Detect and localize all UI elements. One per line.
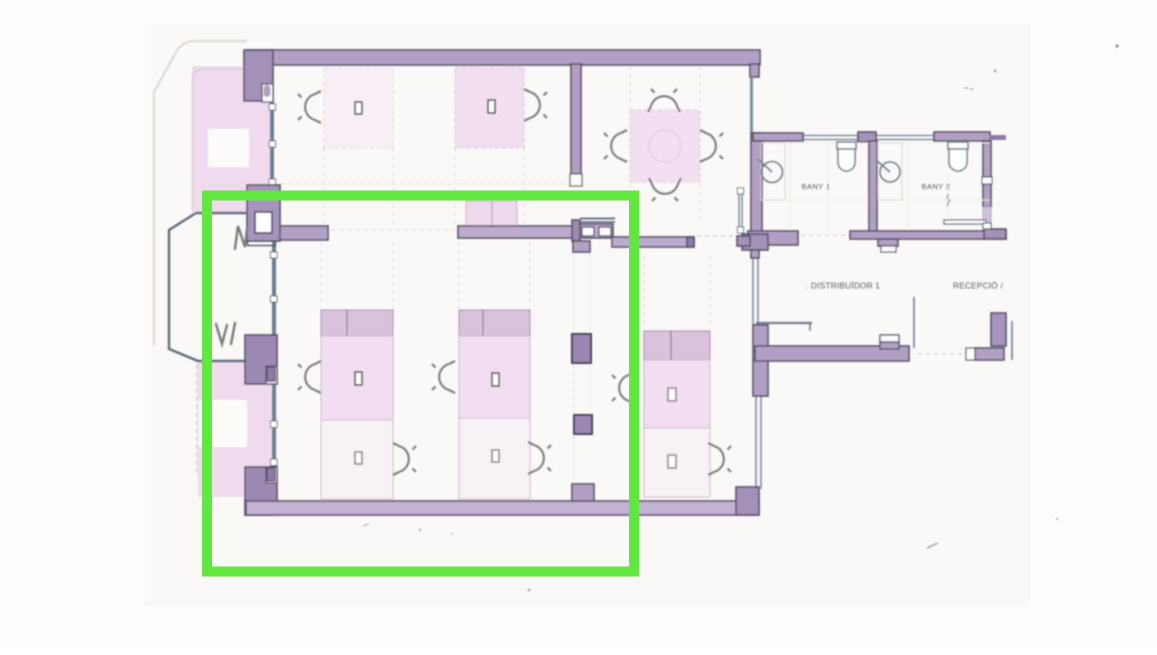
svg-text:BANY 1: BANY 1 [802,182,831,191]
svg-text:RECEPCIÓ /: RECEPCIÓ / [953,281,1003,291]
svg-text:. DISTRIBUÏDOR 1: . DISTRIBUÏDOR 1 [806,281,880,291]
svg-text:BANY 2: BANY 2 [922,182,951,191]
